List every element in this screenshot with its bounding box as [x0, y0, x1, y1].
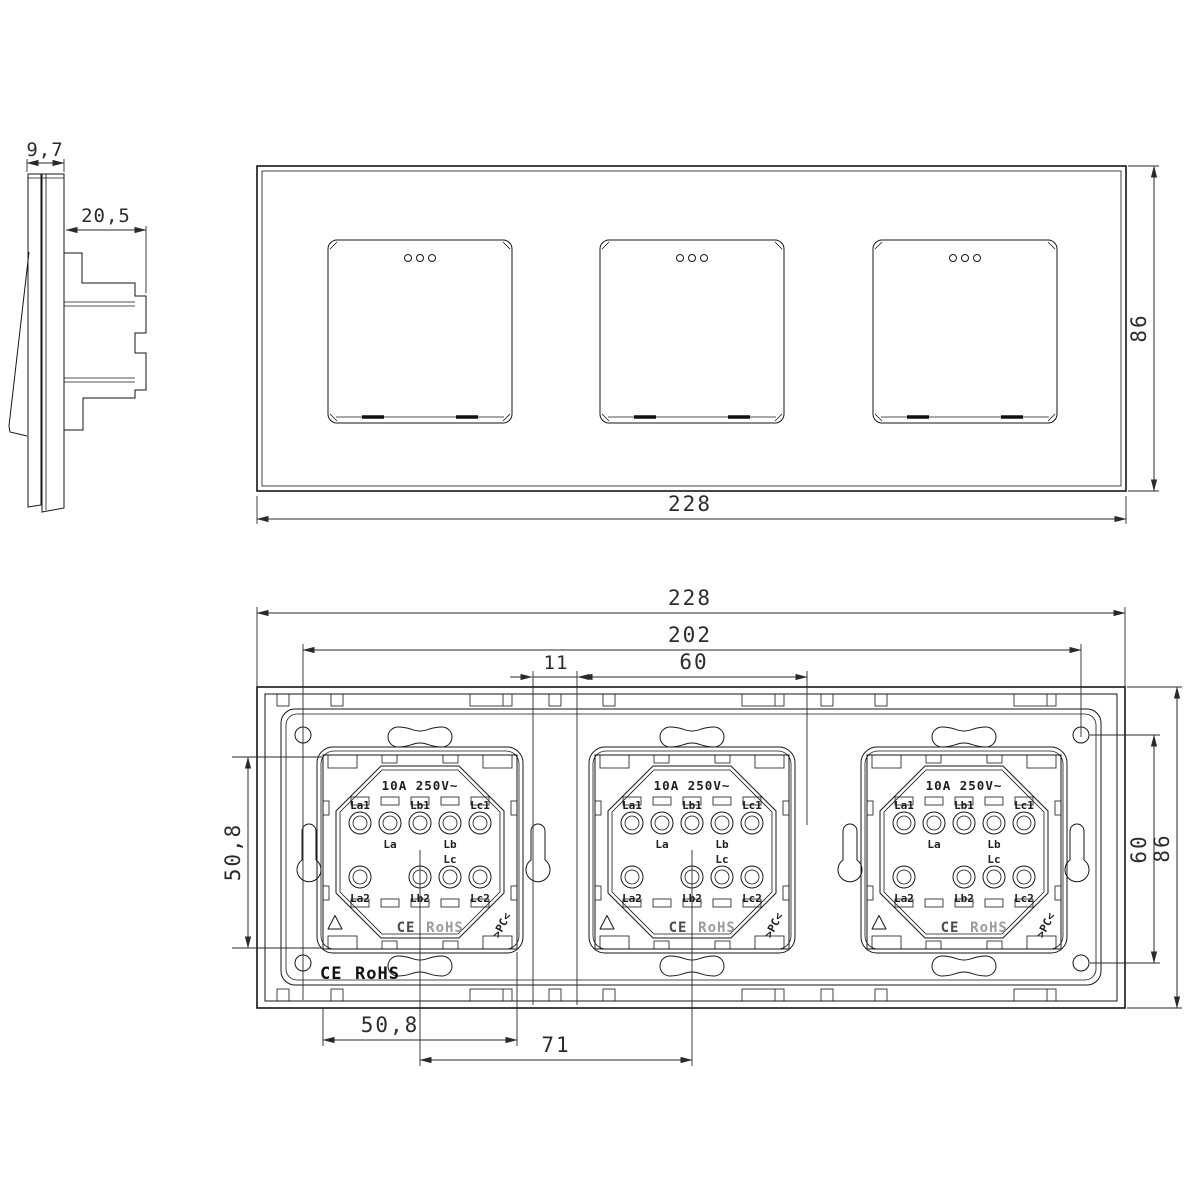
- side-view: 9,7 20,5: [9, 139, 146, 512]
- dim-module-width: 60: [679, 650, 708, 674]
- back-inner-frame: [281, 709, 1101, 985]
- panel-ce-mark: CE: [320, 964, 342, 984]
- mechanism-1: [277, 694, 523, 1001]
- switch-dimensional-drawing: 10A 250V~ La1 Lb1 Lc1 La Lb Lc La2 Lb2 L…: [0, 0, 1200, 1200]
- dim-module-gap: 11: [544, 652, 569, 674]
- side-dimensions: 9,7 20,5: [26, 139, 146, 293]
- rocker-button-3[interactable]: [873, 240, 1057, 423]
- back-dimensions: 228 202 11 60 50,8 60: [221, 586, 1182, 1066]
- dim-screw-span: 202: [668, 623, 712, 647]
- front-view: 228 86: [257, 166, 1159, 524]
- dim-panel-depth: 9,7: [26, 139, 63, 161]
- technical-drawing-page: 10A 250V~ La1 Lb1 Lc1 La Lb Lc La2 Lb2 L…: [0, 0, 1200, 1200]
- mechanism-2: [549, 694, 795, 1001]
- mechanism-3: [821, 694, 1067, 1001]
- rocker-button-1[interactable]: [328, 240, 512, 423]
- dim-box-depth: 20,5: [81, 205, 131, 227]
- dim-screw-height: 60: [1127, 834, 1151, 863]
- dim-frame-height: 50,8: [221, 823, 245, 882]
- dim-back-height: 86: [1150, 833, 1174, 862]
- dim-frame-width: 50,8: [361, 1013, 420, 1037]
- front-dimensions: 228 86: [257, 166, 1159, 524]
- panel-rohs-mark: RoHS: [355, 964, 400, 984]
- dim-front-width: 228: [668, 492, 712, 516]
- dim-module-pitch: 71: [541, 1033, 570, 1057]
- dim-back-width: 228: [668, 586, 712, 610]
- dim-front-height: 86: [1127, 313, 1151, 342]
- front-panel-outline: [257, 166, 1126, 491]
- rocker-button-2[interactable]: [600, 240, 784, 423]
- back-view: CE RoHS 228 202 11 60: [221, 586, 1182, 1066]
